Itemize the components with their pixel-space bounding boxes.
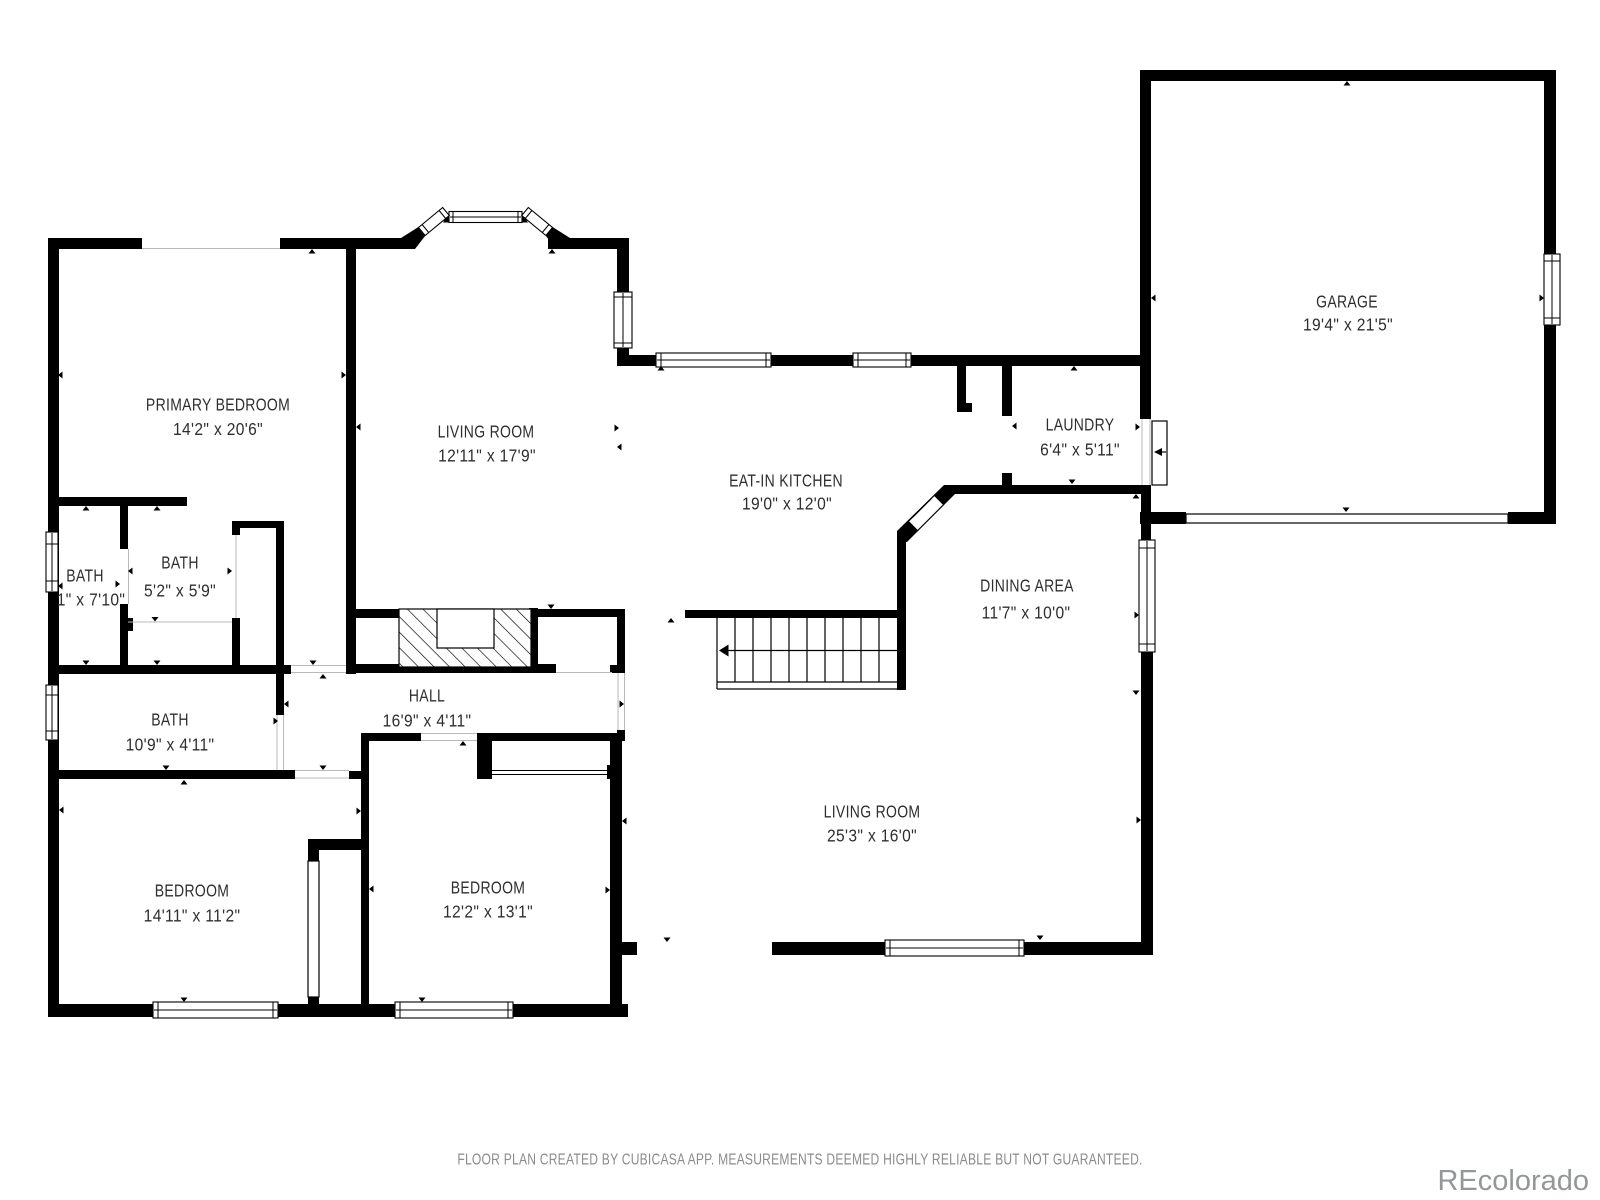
svg-text:BATH: BATH [66, 567, 104, 586]
svg-text:25'3" x 16'0": 25'3" x 16'0" [827, 825, 917, 845]
svg-text:BEDROOM: BEDROOM [155, 882, 229, 901]
svg-text:12'2" x 13'1": 12'2" x 13'1" [443, 901, 533, 921]
svg-text:LIVING ROOM: LIVING ROOM [824, 803, 921, 822]
svg-text:DINING AREA: DINING AREA [980, 577, 1074, 596]
svg-text:REcolorado: REcolorado [1437, 1165, 1589, 1197]
svg-text:11'7" x 10'0": 11'7" x 10'0" [982, 602, 1071, 622]
svg-text:10'9" x 4'11": 10'9" x 4'11" [126, 734, 215, 754]
svg-text:19'0" x 12'0": 19'0" x 12'0" [742, 493, 832, 513]
svg-text:GARAGE: GARAGE [1316, 293, 1378, 312]
svg-text:5'2" x 5'9": 5'2" x 5'9" [144, 580, 216, 600]
svg-text:PRIMARY BEDROOM: PRIMARY BEDROOM [146, 396, 290, 415]
svg-text:FLOOR PLAN CREATED BY CUBICASA: FLOOR PLAN CREATED BY CUBICASA APP. MEAS… [457, 1151, 1142, 1168]
svg-text:BEDROOM: BEDROOM [451, 879, 525, 898]
svg-text:BATH: BATH [161, 554, 199, 573]
svg-text:16'9" x 4'11": 16'9" x 4'11" [383, 710, 472, 730]
svg-text:LAUNDRY: LAUNDRY [1046, 416, 1115, 435]
svg-text:14'2" x 20'6": 14'2" x 20'6" [173, 419, 263, 439]
svg-text:6'4" x 5'11": 6'4" x 5'11" [1040, 439, 1120, 459]
svg-text:12'11" x 17'9": 12'11" x 17'9" [438, 445, 536, 465]
svg-text:LIVING ROOM: LIVING ROOM [438, 423, 535, 442]
svg-text:HALL: HALL [409, 687, 445, 706]
svg-text:1" x 7'10": 1" x 7'10" [57, 589, 126, 609]
svg-text:14'11" x 11'2": 14'11" x 11'2" [144, 905, 241, 925]
svg-text:EAT-IN KITCHEN: EAT-IN KITCHEN [729, 472, 843, 491]
svg-text:BATH: BATH [151, 711, 189, 730]
svg-text:19'4" x 21'5": 19'4" x 21'5" [1303, 314, 1393, 334]
